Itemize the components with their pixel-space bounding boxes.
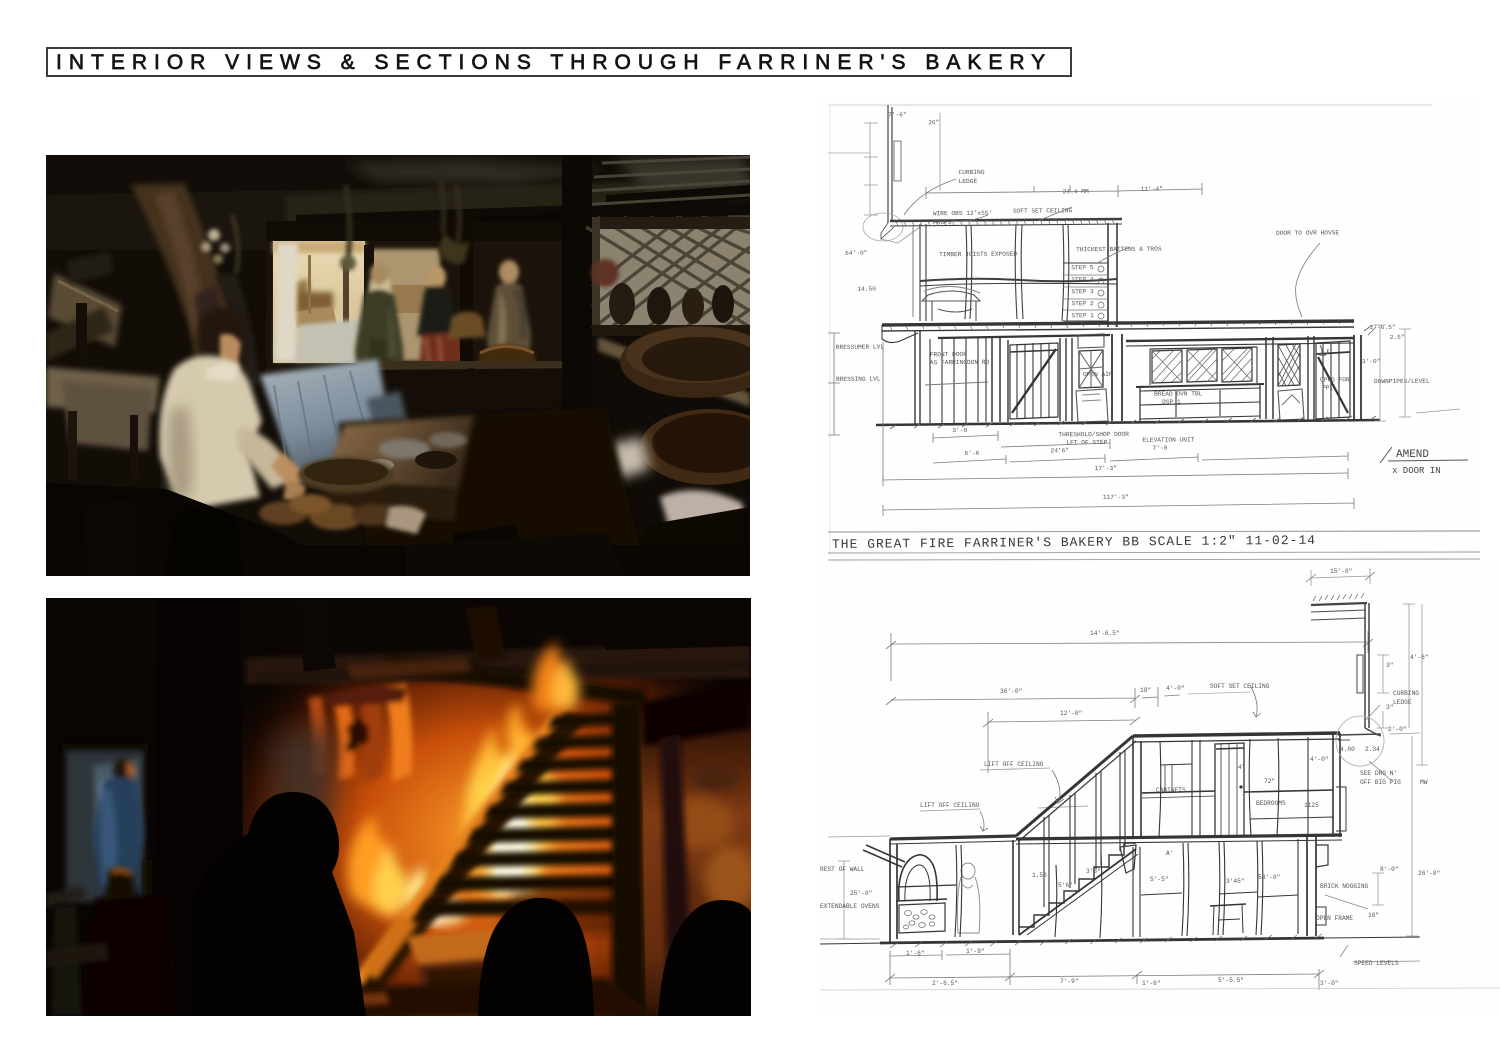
svg-text:6'-6: 6'-6 xyxy=(964,450,979,457)
svg-text:OPEN AIR: OPEN AIR xyxy=(1083,371,1113,378)
svg-text:117'-3": 117'-3" xyxy=(1103,494,1129,501)
svg-text:OPNG FOR: OPNG FOR xyxy=(1320,376,1350,383)
svg-text:WIRE OBS 12'x55': WIRE OBS 12'x55' xyxy=(933,210,992,217)
svg-text:1125: 1125 xyxy=(1304,802,1319,809)
svg-text:4'-0": 4'-0" xyxy=(1166,685,1185,692)
svg-text:4'-0": 4'-0" xyxy=(1310,756,1329,763)
svg-text:53'-0": 53'-0" xyxy=(1258,874,1280,881)
svg-text:3": 3" xyxy=(1386,662,1393,669)
svg-text:PPL: PPL xyxy=(1322,384,1333,391)
svg-text:TIMBER JOISTS EXPOSED: TIMBER JOISTS EXPOSED xyxy=(939,251,1017,259)
svg-text:BREAD OVN TBL: BREAD OVN TBL xyxy=(1154,390,1203,397)
svg-text:LIFT OFF CEILING: LIFT OFF CEILING xyxy=(920,802,980,809)
svg-text:STEP 2: STEP 2 xyxy=(1071,300,1094,307)
svg-text:3'-0: 3'-0 xyxy=(952,427,967,434)
svg-text:CURBING: CURBING xyxy=(959,169,985,176)
svg-text:1'-6": 1'-6" xyxy=(1142,980,1161,987)
svg-text:3'3": 3'3" xyxy=(1086,868,1101,875)
svg-text:AS FARRINGDON RD: AS FARRINGDON RD xyxy=(930,359,990,366)
svg-text:4": 4" xyxy=(1238,764,1245,771)
svg-text:BRICK NOGGING: BRICK NOGGING xyxy=(1320,883,1369,890)
svg-text:PROPS: PROPS xyxy=(933,219,952,226)
svg-text:18": 18" xyxy=(1140,687,1151,694)
svg-text:SPEED LEVELS: SPEED LEVELS xyxy=(1354,960,1399,967)
svg-text:2'-6.5": 2'-6.5" xyxy=(932,980,958,987)
svg-text:A': A' xyxy=(1166,850,1173,857)
svg-text:72": 72" xyxy=(1264,778,1275,785)
svg-text:LFT OF STEP: LFT OF STEP xyxy=(1066,439,1107,446)
svg-text:8'-0": 8'-0" xyxy=(1380,866,1399,873)
svg-text:REST OF WALL: REST OF WALL xyxy=(820,866,865,873)
svg-text:12'-0": 12'-0" xyxy=(1060,710,1082,717)
svg-text:7'-6": 7'-6" xyxy=(888,111,907,118)
svg-text:FRONT DOOR: FRONT DOOR xyxy=(930,351,967,358)
svg-text:STEP 5: STEP 5 xyxy=(1071,264,1094,271)
svg-text:BEDROOMS: BEDROOMS xyxy=(1256,800,1286,807)
svg-text:17'-3": 17'-3" xyxy=(1095,465,1117,472)
svg-text:7'-9": 7'-9" xyxy=(1060,978,1079,985)
svg-text:25'-0": 25'-0" xyxy=(850,890,872,897)
svg-text:4'-6": 4'-6" xyxy=(1410,654,1429,661)
svg-text:SEE DRG N': SEE DRG N' xyxy=(1360,770,1397,777)
svg-text:x DOOR IN: x DOOR IN xyxy=(1392,466,1441,476)
svg-text:LEDGE: LEDGE xyxy=(1393,699,1412,706)
svg-text:2'-0": 2'-0" xyxy=(1388,726,1407,733)
svg-text:1'-6": 1'-6" xyxy=(906,950,925,957)
svg-text:5'-5.5": 5'-5.5" xyxy=(1218,977,1244,984)
svg-text:5'6": 5'6" xyxy=(1058,882,1073,889)
svg-text:3'-0": 3'-0" xyxy=(1362,358,1381,365)
svg-text:24'6": 24'6" xyxy=(1050,447,1069,454)
svg-text:1.50: 1.50 xyxy=(1032,872,1047,879)
svg-text:STEP 1: STEP 1 xyxy=(1072,312,1095,319)
svg-text:10": 10" xyxy=(1368,912,1379,919)
svg-text:LEDGE: LEDGE xyxy=(959,178,978,185)
svg-text:OPEN FRAME: OPEN FRAME xyxy=(1316,915,1353,922)
svg-text:64'-0": 64'-0" xyxy=(845,250,867,257)
svg-text:3'45": 3'45" xyxy=(1226,878,1245,885)
svg-text:4.00: 4.00 xyxy=(1340,746,1355,753)
svg-text:EXTENDABLE OVENS: EXTENDABLE OVENS xyxy=(820,903,880,910)
svg-text:SOFT SET CEILING: SOFT SET CEILING xyxy=(1210,683,1270,690)
svg-text:11'-4": 11'-4" xyxy=(1141,186,1163,193)
svg-text:14'-6.5": 14'-6.5" xyxy=(1090,630,1120,637)
svg-text:CURBING: CURBING xyxy=(1393,690,1419,697)
svg-text:15'-0": 15'-0" xyxy=(1330,568,1352,575)
svg-text:STEP 4: STEP 4 xyxy=(1071,276,1094,283)
svg-text:36'-0": 36'-0" xyxy=(1000,688,1022,695)
svg-text:DOWNPIPES/LEVEL: DOWNPIPES/LEVEL xyxy=(1374,378,1430,385)
svg-text:LIFT OFF CEILING: LIFT OFF CEILING xyxy=(984,761,1044,768)
svg-text:BRESSUMER LVL: BRESSUMER LVL xyxy=(836,344,885,351)
svg-text:DSP 1: DSP 1 xyxy=(1162,398,1181,405)
svg-text:3'-0": 3'-0" xyxy=(1320,980,1339,987)
svg-text:14.50: 14.50 xyxy=(857,286,876,293)
svg-text:1'-9": 1'-9" xyxy=(966,948,985,955)
svg-text:OFF BIG PIG: OFF BIG PIG xyxy=(1360,779,1401,786)
svg-text:STEP 3: STEP 3 xyxy=(1071,288,1094,295)
svg-text:2.5": 2.5" xyxy=(1390,334,1405,341)
svg-text:7'-0: 7'-0 xyxy=(1152,445,1167,452)
svg-text:5'-5": 5'-5" xyxy=(1150,876,1169,883)
svg-text:26'-0": 26'-0" xyxy=(1418,870,1440,877)
svg-text:2.34: 2.34 xyxy=(1365,746,1380,753)
svg-text:26": 26" xyxy=(928,119,939,126)
svg-text:THRESHOLD/SHOP DOOR: THRESHOLD/SHOP DOOR xyxy=(1058,431,1129,438)
svg-text:AMEND: AMEND xyxy=(1396,449,1429,461)
svg-text:MW: MW xyxy=(1420,779,1428,786)
svg-text:SOFT SET CEILING: SOFT SET CEILING xyxy=(1013,207,1073,214)
svg-text:CABINETS: CABINETS xyxy=(1156,787,1186,794)
svg-text:ELEVATION UNIT: ELEVATION UNIT xyxy=(1142,436,1194,443)
svg-text:DOOR TO OVR HOVSE: DOOR TO OVR HOVSE xyxy=(1276,229,1339,236)
svg-text:BRESSING LVL: BRESSING LVL xyxy=(836,376,881,383)
